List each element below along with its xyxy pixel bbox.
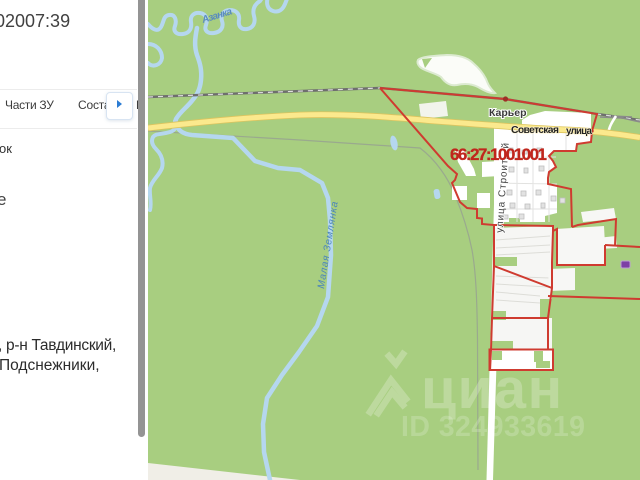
svg-text:улица: улица: [566, 126, 592, 137]
svg-text:Карьер: Карьер: [489, 107, 527, 119]
svg-text:ID 324933619: ID 324933619: [401, 411, 585, 443]
svg-text:66:27:1001001: 66:27:1001001: [450, 145, 547, 164]
svg-text:Советская: Советская: [511, 124, 559, 136]
